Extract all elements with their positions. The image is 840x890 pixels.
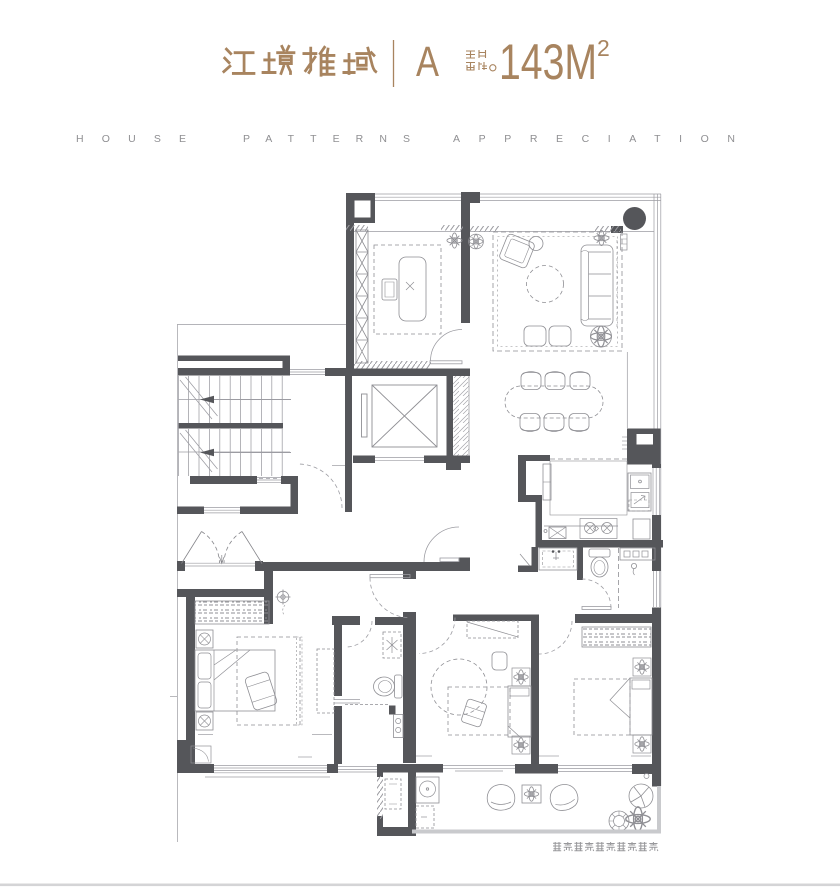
svg-text:PATTERNS: PATTERNS — [243, 133, 410, 145]
svg-text:HOUSE: HOUSE — [76, 133, 186, 145]
svg-text:A: A — [416, 38, 439, 86]
svg-text:APPRECIATION: APPRECIATION — [453, 133, 735, 145]
svg-text:143M: 143M — [499, 34, 597, 90]
svg-text:2: 2 — [597, 35, 610, 61]
